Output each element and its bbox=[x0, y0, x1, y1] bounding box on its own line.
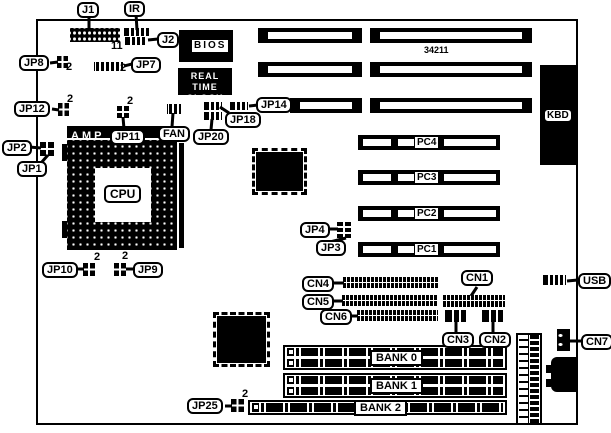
callout-cn6: CN6 bbox=[320, 309, 352, 325]
callout-j2: J2 bbox=[157, 32, 179, 48]
jp9-pin2-label: 2 bbox=[122, 251, 128, 262]
callout-usb: USB bbox=[578, 273, 611, 289]
leader-lines bbox=[0, 0, 611, 433]
j1-pin11-label: 11 bbox=[111, 41, 123, 52]
callout-cn3: CN3 bbox=[442, 332, 474, 348]
jp8-pin2-label: 2 bbox=[66, 62, 72, 73]
callout-jp18: JP18 bbox=[225, 112, 261, 128]
callout-jp12: JP12 bbox=[14, 101, 50, 117]
jp11-pin2-label: 2 bbox=[127, 96, 133, 107]
callout-jp20: JP20 bbox=[193, 129, 229, 145]
callout-jp3: JP3 bbox=[316, 240, 346, 256]
jp25-pin2-label: 2 bbox=[242, 389, 248, 400]
callout-cn1: CN1 bbox=[461, 270, 493, 286]
jp7-pin2-label: 2 bbox=[120, 63, 126, 74]
jp10-pin2-label: 2 bbox=[94, 252, 100, 263]
callout-jp11: JP11 bbox=[110, 129, 145, 145]
motherboard-diagram: 11 BIOS REAL TIME CLOCK KBD 34211 PC4 PC… bbox=[0, 0, 611, 433]
callout-cn2: CN2 bbox=[479, 332, 511, 348]
callout-jp1: JP1 bbox=[17, 161, 47, 177]
callout-jp9: JP9 bbox=[133, 262, 163, 278]
callout-jp4: JP4 bbox=[300, 222, 330, 238]
callout-cn4: CN4 bbox=[302, 276, 334, 292]
jp12-pin2-label: 2 bbox=[67, 94, 73, 105]
callout-ir: IR bbox=[124, 1, 145, 17]
callout-jp25: JP25 bbox=[187, 398, 223, 414]
callout-fan: FAN bbox=[158, 126, 190, 142]
callout-jp2: JP2 bbox=[2, 140, 32, 156]
callout-jp14: JP14 bbox=[256, 97, 292, 113]
callout-j1: J1 bbox=[77, 2, 99, 18]
callout-cn7: CN7 bbox=[581, 334, 611, 350]
callout-jp7: JP7 bbox=[131, 57, 161, 73]
callout-jp10: JP10 bbox=[42, 262, 78, 278]
callout-cn5: CN5 bbox=[302, 294, 334, 310]
callout-jp8: JP8 bbox=[19, 55, 49, 71]
